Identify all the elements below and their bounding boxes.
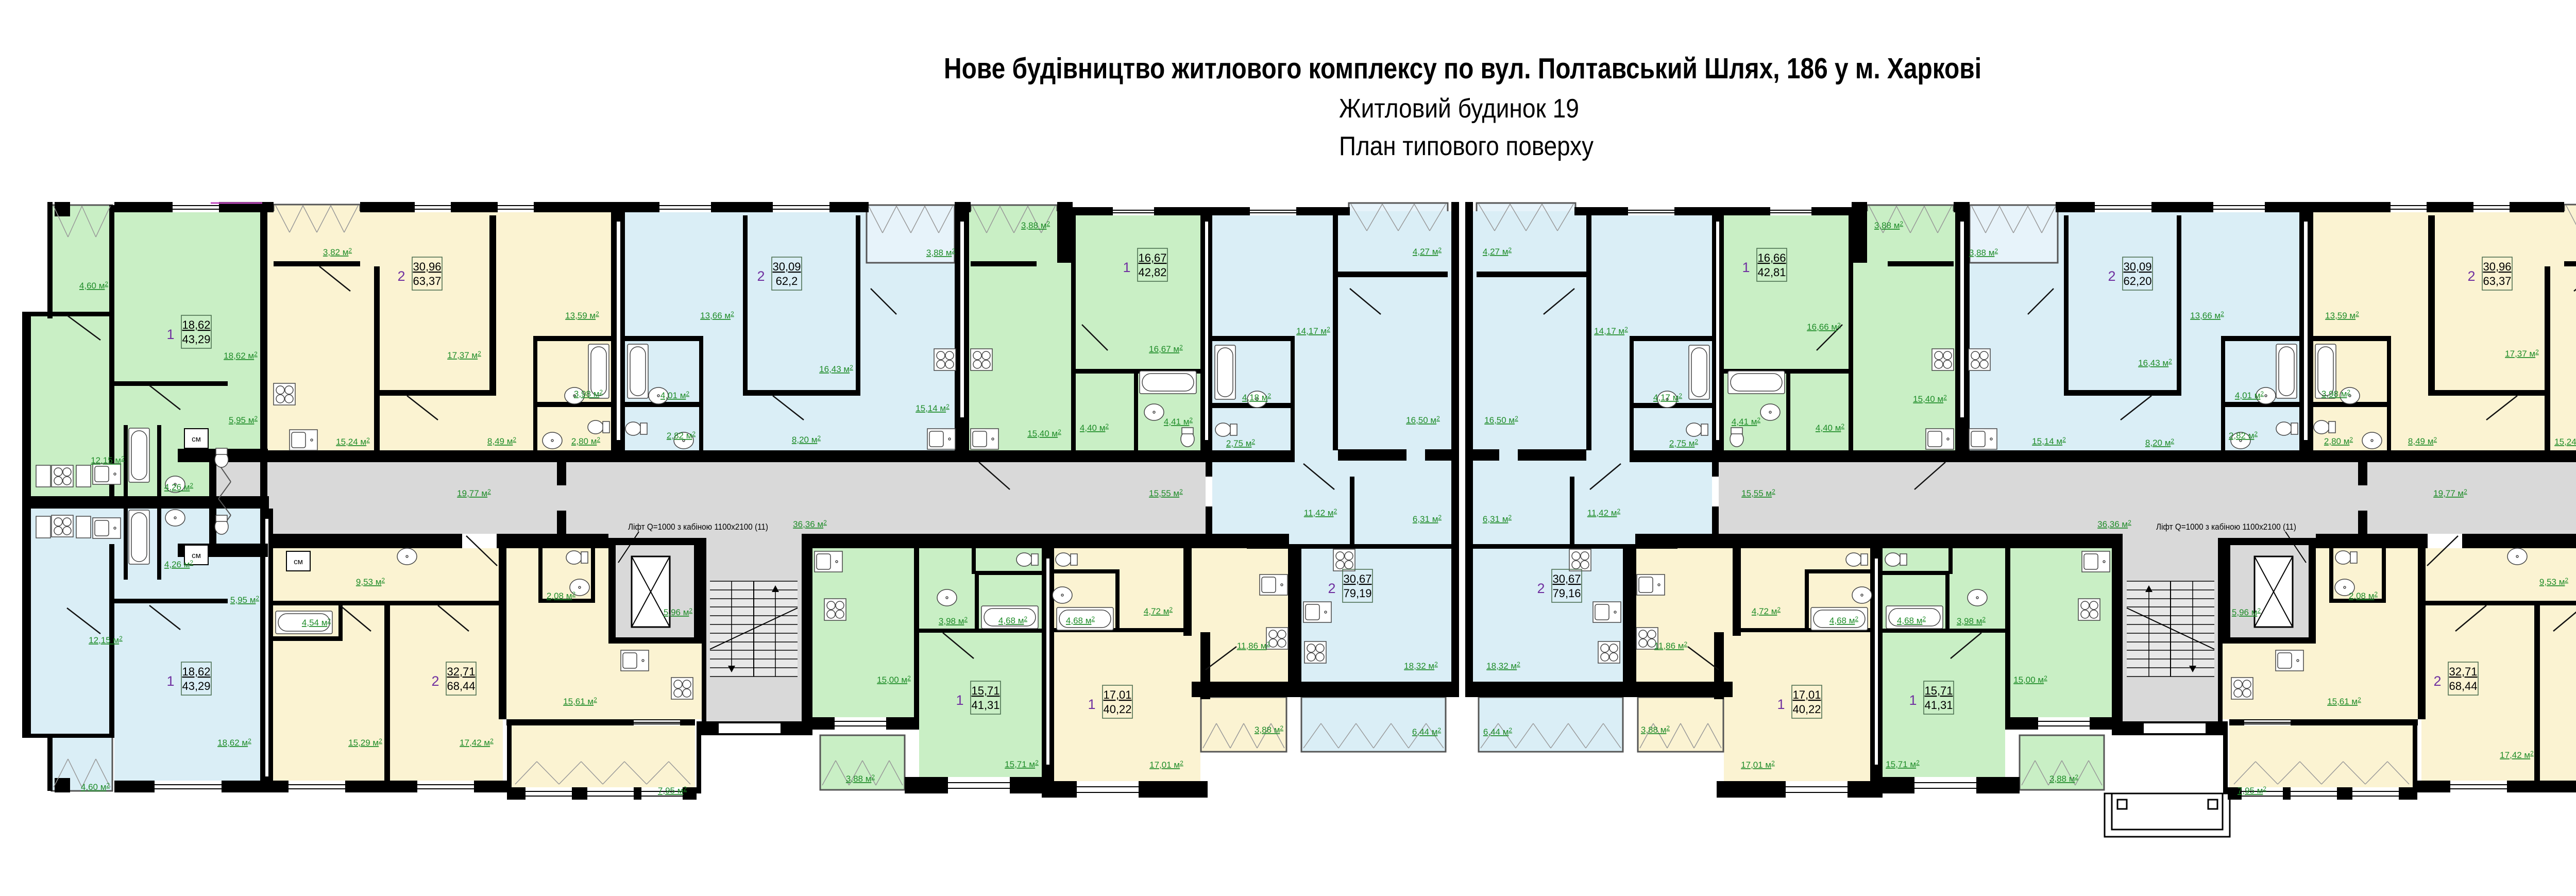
svg-text:8,20 м2: 8,20 м2 xyxy=(2145,437,2175,448)
svg-text:15,71: 15,71 xyxy=(971,684,999,697)
svg-text:4,41 м2: 4,41 м2 xyxy=(1164,416,1193,427)
svg-text:17,01 м2: 17,01 м2 xyxy=(1149,759,1183,770)
svg-text:15,40 м2: 15,40 м2 xyxy=(1913,394,1947,404)
svg-text:15,14 м2: 15,14 м2 xyxy=(2032,436,2066,446)
svg-text:36,36 м2: 36,36 м2 xyxy=(2097,519,2131,529)
svg-text:2: 2 xyxy=(397,268,405,284)
svg-text:13,66 м2: 13,66 м2 xyxy=(700,310,734,320)
svg-text:18,32 м2: 18,32 м2 xyxy=(1404,661,1438,671)
svg-text:4,72 м2: 4,72 м2 xyxy=(1144,606,1173,616)
svg-text:15,55 м2: 15,55 м2 xyxy=(1149,488,1183,498)
svg-text:4,68 м2: 4,68 м2 xyxy=(998,615,1028,625)
svg-text:4,60 м2: 4,60 м2 xyxy=(79,280,109,291)
svg-text:8,49 м2: 8,49 м2 xyxy=(2408,436,2437,446)
svg-text:14,17 м2: 14,17 м2 xyxy=(1594,326,1628,336)
svg-text:30,96: 30,96 xyxy=(2483,260,2511,273)
svg-text:17,42 м2: 17,42 м2 xyxy=(460,737,494,748)
svg-text:11,42 м2: 11,42 м2 xyxy=(1587,508,1621,518)
svg-text:15,55 м2: 15,55 м2 xyxy=(1741,488,1775,498)
svg-text:30,09: 30,09 xyxy=(772,260,801,273)
svg-text:9,53 м2: 9,53 м2 xyxy=(356,577,385,587)
svg-text:2,82 м2: 2,82 м2 xyxy=(2229,430,2258,441)
svg-text:6,44 м2: 6,44 м2 xyxy=(1483,726,1513,737)
svg-text:3,82 м2: 3,82 м2 xyxy=(323,247,352,257)
svg-text:4,01 м2: 4,01 м2 xyxy=(2235,390,2264,400)
svg-text:2,75 м2: 2,75 м2 xyxy=(1226,438,1256,448)
svg-text:62,20: 62,20 xyxy=(2123,275,2151,288)
svg-text:43,29: 43,29 xyxy=(182,680,210,692)
svg-text:2: 2 xyxy=(2433,673,2441,689)
svg-text:18,62 м2: 18,62 м2 xyxy=(224,350,258,361)
svg-text:30,09: 30,09 xyxy=(2123,260,2151,273)
svg-text:17,37 м2: 17,37 м2 xyxy=(2505,348,2539,359)
svg-text:2,80 м2: 2,80 м2 xyxy=(571,436,601,446)
svg-text:5,96 м2: 5,96 м2 xyxy=(2232,607,2261,617)
svg-text:18,62: 18,62 xyxy=(182,318,210,331)
svg-text:79,16: 79,16 xyxy=(1552,587,1581,600)
svg-text:3,88 м2: 3,88 м2 xyxy=(1969,247,1998,258)
svg-text:1: 1 xyxy=(956,692,963,708)
svg-text:36,36 м2: 36,36 м2 xyxy=(793,519,827,529)
svg-text:5,96 м2: 5,96 м2 xyxy=(664,607,693,617)
svg-text:5,95 м2: 5,95 м2 xyxy=(229,415,258,425)
svg-text:4,01 м2: 4,01 м2 xyxy=(660,390,690,400)
svg-text:1: 1 xyxy=(1742,260,1750,275)
svg-text:17,01: 17,01 xyxy=(1103,688,1131,701)
svg-text:63,37: 63,37 xyxy=(2483,275,2511,288)
svg-text:79,19: 79,19 xyxy=(1343,587,1371,600)
svg-text:4,17 м2: 4,17 м2 xyxy=(1653,392,1683,402)
svg-text:1: 1 xyxy=(166,673,174,689)
svg-text:19,77 м2: 19,77 м2 xyxy=(2433,488,2467,498)
svg-text:Житловий будинок 19: Житловий будинок 19 xyxy=(1339,94,1579,124)
svg-text:19,77 м2: 19,77 м2 xyxy=(457,488,491,498)
svg-text:11,86 м2: 11,86 м2 xyxy=(1237,640,1270,651)
svg-text:4,68 м2: 4,68 м2 xyxy=(1066,615,1095,625)
svg-text:15,24 м2: 15,24 м2 xyxy=(2554,436,2576,447)
svg-text:16,43 м2: 16,43 м2 xyxy=(819,364,853,374)
svg-text:15,24 м2: 15,24 м2 xyxy=(336,436,370,447)
svg-text:62,2: 62,2 xyxy=(776,275,798,288)
svg-text:32,71: 32,71 xyxy=(447,665,475,678)
svg-text:2: 2 xyxy=(1328,581,1335,596)
svg-text:4,68 м2: 4,68 м2 xyxy=(1829,615,1859,625)
svg-text:3,88 м2: 3,88 м2 xyxy=(1255,724,1284,735)
svg-text:4,40 м2: 4,40 м2 xyxy=(1080,422,1109,433)
svg-text:2: 2 xyxy=(431,673,439,689)
svg-text:13,59 м2: 13,59 м2 xyxy=(2325,310,2359,320)
svg-text:12,15 м2: 12,15 м2 xyxy=(91,455,125,465)
svg-text:3,88 м2: 3,88 м2 xyxy=(1874,220,1904,230)
svg-text:1: 1 xyxy=(1088,697,1095,712)
svg-text:План типового поверху: План типового поверху xyxy=(1339,131,1594,161)
svg-text:40,22: 40,22 xyxy=(1103,703,1131,716)
svg-text:8,20 м2: 8,20 м2 xyxy=(792,434,821,445)
svg-text:4,27 м2: 4,27 м2 xyxy=(1483,246,1512,257)
svg-text:4,72 м2: 4,72 м2 xyxy=(1752,606,1781,616)
svg-text:2: 2 xyxy=(2108,268,2115,284)
svg-text:см: см xyxy=(192,435,201,444)
svg-text:Ліфт Q=1000 з кабіною 1100х210: Ліфт Q=1000 з кабіною 1100х2100 (11) xyxy=(628,522,768,532)
svg-text:16,50 м2: 16,50 м2 xyxy=(1406,415,1440,425)
svg-text:30,96: 30,96 xyxy=(413,260,441,273)
svg-text:2,82 м2: 2,82 м2 xyxy=(667,430,696,441)
svg-text:15,61 м2: 15,61 м2 xyxy=(2327,696,2361,706)
svg-text:30,67: 30,67 xyxy=(1552,572,1581,585)
svg-text:4,41 м2: 4,41 м2 xyxy=(1732,416,1761,427)
svg-text:2: 2 xyxy=(1537,581,1545,596)
svg-text:11,42 м2: 11,42 м2 xyxy=(1304,508,1337,518)
svg-text:16,67: 16,67 xyxy=(1138,251,1166,264)
svg-text:4,27 м2: 4,27 м2 xyxy=(1413,246,1442,257)
svg-text:15,14 м2: 15,14 м2 xyxy=(916,403,950,413)
svg-text:3,98 м2: 3,98 м2 xyxy=(939,616,968,626)
svg-text:16,50 м2: 16,50 м2 xyxy=(1484,415,1518,425)
svg-text:17,42 м2: 17,42 м2 xyxy=(2500,750,2534,760)
svg-text:8,49 м2: 8,49 м2 xyxy=(487,436,517,446)
svg-text:12,15 м2: 12,15 м2 xyxy=(89,635,123,645)
svg-text:7,95 м2: 7,95 м2 xyxy=(2238,785,2267,796)
svg-text:2: 2 xyxy=(2467,268,2475,284)
svg-text:1: 1 xyxy=(166,327,174,342)
svg-text:17,01: 17,01 xyxy=(1792,688,1821,701)
svg-text:2,75 м2: 2,75 м2 xyxy=(1669,438,1699,448)
svg-text:11,86 м2: 11,86 м2 xyxy=(1654,640,1688,651)
svg-text:15,71 м2: 15,71 м2 xyxy=(1005,759,1039,769)
svg-text:5,95 м2: 5,95 м2 xyxy=(230,595,260,605)
svg-text:14,17 м2: 14,17 м2 xyxy=(1296,326,1330,336)
svg-text:см: см xyxy=(294,557,303,566)
svg-text:4,40 м2: 4,40 м2 xyxy=(1816,422,1845,433)
svg-text:4,26 м2: 4,26 м2 xyxy=(164,482,194,492)
svg-text:15,71: 15,71 xyxy=(1924,684,1953,697)
svg-text:3,88 м2: 3,88 м2 xyxy=(2049,773,2079,784)
svg-text:2,08 м2: 2,08 м2 xyxy=(547,590,576,601)
svg-text:15,61 м2: 15,61 м2 xyxy=(563,696,597,706)
svg-text:4,26 м2: 4,26 м2 xyxy=(164,559,194,569)
svg-text:68,44: 68,44 xyxy=(2449,680,2477,692)
svg-text:3,88 м2: 3,88 м2 xyxy=(926,247,956,258)
svg-text:7,95 м2: 7,95 м2 xyxy=(658,785,687,796)
svg-text:43,29: 43,29 xyxy=(182,333,210,346)
svg-text:2,80 м2: 2,80 м2 xyxy=(2324,436,2353,446)
svg-text:3,88 м2: 3,88 м2 xyxy=(846,773,875,784)
svg-text:3,98 м2: 3,98 м2 xyxy=(574,388,603,399)
svg-text:18,32 м2: 18,32 м2 xyxy=(1486,661,1520,671)
svg-text:41,31: 41,31 xyxy=(971,699,999,712)
svg-text:15,29 м2: 15,29 м2 xyxy=(348,737,382,748)
svg-text:40,22: 40,22 xyxy=(1792,703,1821,716)
svg-text:4,68 м2: 4,68 м2 xyxy=(1897,615,1926,625)
svg-text:41,31: 41,31 xyxy=(1924,699,1953,712)
svg-text:6,31 м2: 6,31 м2 xyxy=(1413,514,1442,524)
svg-text:4,18 м2: 4,18 м2 xyxy=(1242,392,1272,402)
svg-text:1: 1 xyxy=(1909,692,1917,708)
svg-text:32,71: 32,71 xyxy=(2449,665,2477,678)
svg-text:9,53 м2: 9,53 м2 xyxy=(2539,577,2569,587)
svg-text:4,60 м2: 4,60 м2 xyxy=(81,782,110,792)
svg-text:2,08 м2: 2,08 м2 xyxy=(2349,590,2378,601)
svg-text:15,00 м2: 15,00 м2 xyxy=(877,674,911,685)
svg-text:18,62: 18,62 xyxy=(182,665,210,678)
svg-text:13,59 м2: 13,59 м2 xyxy=(565,310,599,320)
svg-text:42,82: 42,82 xyxy=(1138,266,1166,279)
svg-text:Ліфт Q=1000 з кабіною 1100х210: Ліфт Q=1000 з кабіною 1100х2100 (11) xyxy=(2156,522,2296,532)
svg-text:3,98 м2: 3,98 м2 xyxy=(2321,388,2351,399)
svg-text:63,37: 63,37 xyxy=(413,275,441,288)
svg-text:13,66 м2: 13,66 м2 xyxy=(2190,310,2224,320)
svg-text:3,88 м2: 3,88 м2 xyxy=(1021,220,1050,230)
svg-text:15,40 м2: 15,40 м2 xyxy=(1027,428,1061,438)
svg-text:3,98 м2: 3,98 м2 xyxy=(1957,616,1986,626)
svg-text:15,00 м2: 15,00 м2 xyxy=(2013,674,2047,685)
svg-text:2: 2 xyxy=(757,268,765,284)
svg-text:4,54 м2: 4,54 м2 xyxy=(302,617,331,628)
svg-text:1: 1 xyxy=(1777,697,1785,712)
svg-text:42,81: 42,81 xyxy=(1757,266,1786,279)
svg-text:68,44: 68,44 xyxy=(447,680,475,692)
svg-text:6,31 м2: 6,31 м2 xyxy=(1483,514,1512,524)
svg-text:3,88 м2: 3,88 м2 xyxy=(1641,724,1670,735)
svg-text:17,01 м2: 17,01 м2 xyxy=(1741,759,1775,770)
svg-text:16,66 м2: 16,66 м2 xyxy=(1807,322,1841,332)
svg-text:6,44 м2: 6,44 м2 xyxy=(1412,726,1442,737)
svg-text:17,37 м2: 17,37 м2 xyxy=(447,350,481,360)
svg-text:Нове будівництво житлового ком: Нове будівництво житлового комплексу по … xyxy=(944,52,1981,85)
svg-text:15,71 м2: 15,71 м2 xyxy=(1886,759,1920,769)
svg-text:16,66: 16,66 xyxy=(1757,251,1786,264)
svg-text:18,62 м2: 18,62 м2 xyxy=(217,737,251,748)
svg-text:30,67: 30,67 xyxy=(1343,572,1371,585)
svg-text:16,67 м2: 16,67 м2 xyxy=(1149,344,1183,354)
svg-text:1: 1 xyxy=(1123,260,1130,275)
svg-text:16,43 м2: 16,43 м2 xyxy=(2138,358,2172,368)
